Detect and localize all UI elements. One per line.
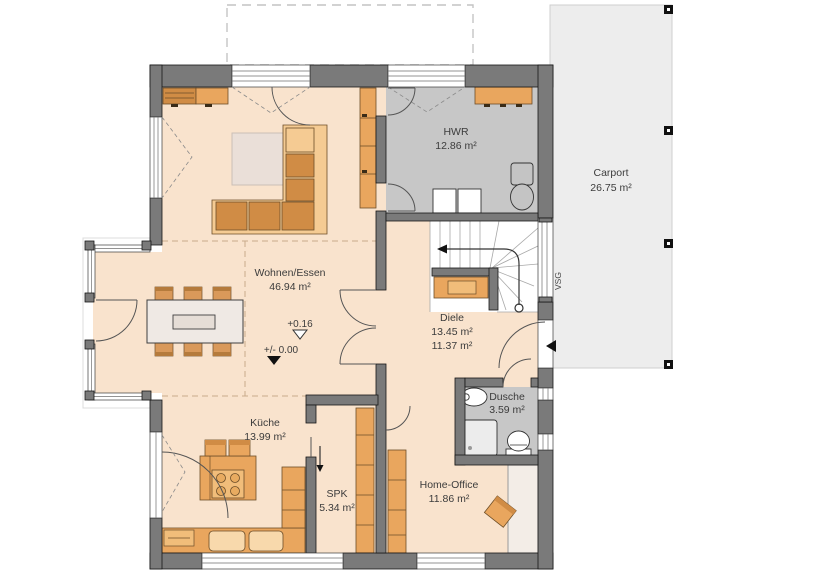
room-label-carport: Carport	[593, 167, 628, 179]
dryer	[458, 189, 481, 213]
pantry-shelf	[356, 408, 374, 553]
upper-floor-outline	[227, 5, 473, 65]
glazing-vsg	[538, 218, 553, 302]
room-area-pantry: 5.34 m²	[319, 502, 355, 514]
washing-machine	[433, 189, 456, 213]
floor-plan-drawing: Wohnen/Essen 46.94 m² HWR 12.86 m² Diele…	[0, 0, 822, 570]
level-marker-upper: +0.16	[287, 319, 313, 330]
window-utility-north	[388, 65, 465, 87]
window-shower-east	[538, 388, 553, 400]
office-shelf	[388, 450, 406, 553]
cooktop	[212, 470, 244, 498]
room-area-shower: 3.59 m²	[489, 404, 525, 416]
kitchen-island	[200, 456, 256, 500]
level-marker-ground: +/- 0.00	[264, 345, 299, 356]
room-label-kitchen: Küche	[250, 417, 280, 429]
floor-plan: Wohnen/Essen 46.94 m² HWR 12.86 m² Diele…	[0, 0, 822, 570]
glazing-label: VSG	[553, 272, 563, 290]
stair-sideboard	[434, 277, 488, 298]
terrace-door-kitchen	[150, 432, 162, 518]
utility-basin	[511, 163, 533, 185]
room-area-kitchen: 13.99 m²	[244, 431, 286, 443]
window-living-north	[232, 65, 310, 87]
room-area-office: 11.86 m²	[429, 493, 470, 505]
room-area-living: 46.94 m²	[269, 281, 311, 293]
room-area-hall-2: 11.37 m²	[432, 340, 473, 352]
room-area-utility: 12.86 m²	[435, 140, 477, 152]
room-label-living: Wohnen/Essen	[254, 267, 325, 279]
dining-set	[147, 287, 243, 356]
window-living-west	[150, 117, 162, 198]
utility-counter	[475, 87, 532, 104]
room-label-pantry: SPK	[326, 488, 347, 500]
room-label-utility: HWR	[443, 126, 468, 138]
room-area-carport: 26.75 m²	[590, 182, 632, 194]
window-office-south	[417, 553, 485, 569]
toilet	[508, 431, 530, 451]
sink-basin	[209, 531, 245, 551]
shower-tray	[463, 420, 497, 456]
sideboard	[163, 88, 228, 107]
window-kitchen-south	[202, 553, 343, 569]
room-area-hall-1: 13.45 m²	[431, 326, 473, 338]
rug	[232, 133, 287, 185]
room-label-hall: Diele	[440, 312, 464, 324]
room-label-office: Home-Office	[420, 479, 479, 491]
window-east-small	[538, 434, 553, 450]
wall-shelf	[360, 88, 376, 208]
sink-basin	[249, 531, 283, 551]
room-label-shower: Dusche	[489, 391, 525, 403]
